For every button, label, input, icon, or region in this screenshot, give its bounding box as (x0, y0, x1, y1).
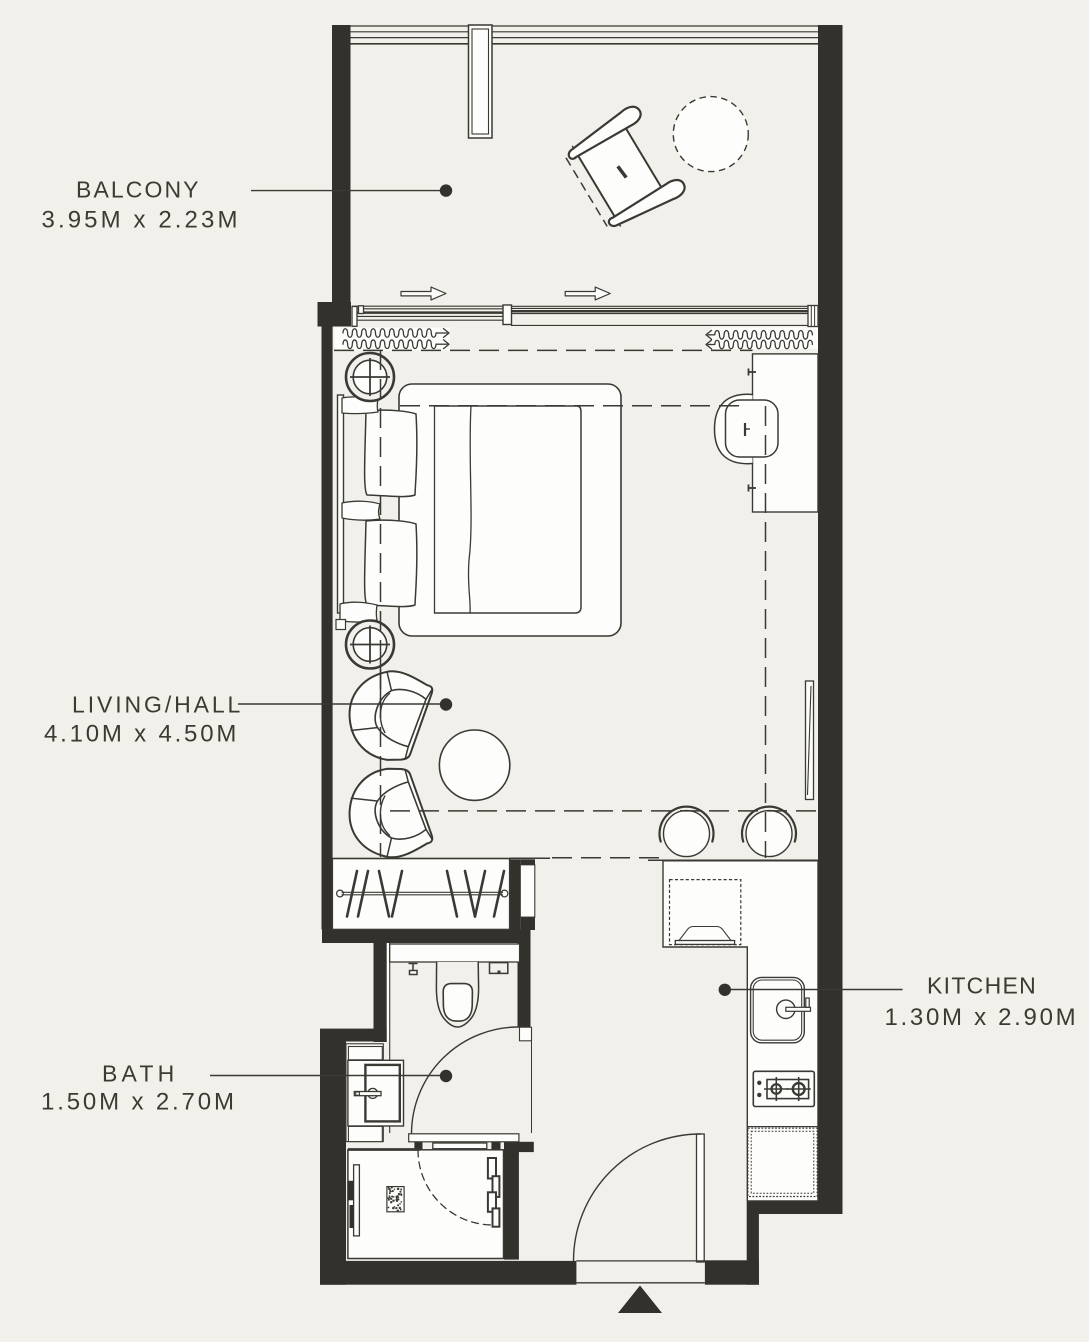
svg-text:1.50M x 2.70M: 1.50M x 2.70M (41, 1089, 237, 1116)
svg-text:BALCONY: BALCONY (76, 176, 201, 202)
svg-text:KITCHEN: KITCHEN (927, 973, 1037, 999)
svg-text:LIVING/HALL: LIVING/HALL (72, 692, 243, 718)
svg-text:BATH: BATH (102, 1061, 178, 1087)
svg-text:1.30M x 2.90M: 1.30M x 2.90M (885, 1004, 1079, 1031)
svg-text:3.95M x 2.23M: 3.95M x 2.23M (42, 206, 241, 233)
svg-text:4.10M x 4.50M: 4.10M x 4.50M (44, 720, 239, 747)
